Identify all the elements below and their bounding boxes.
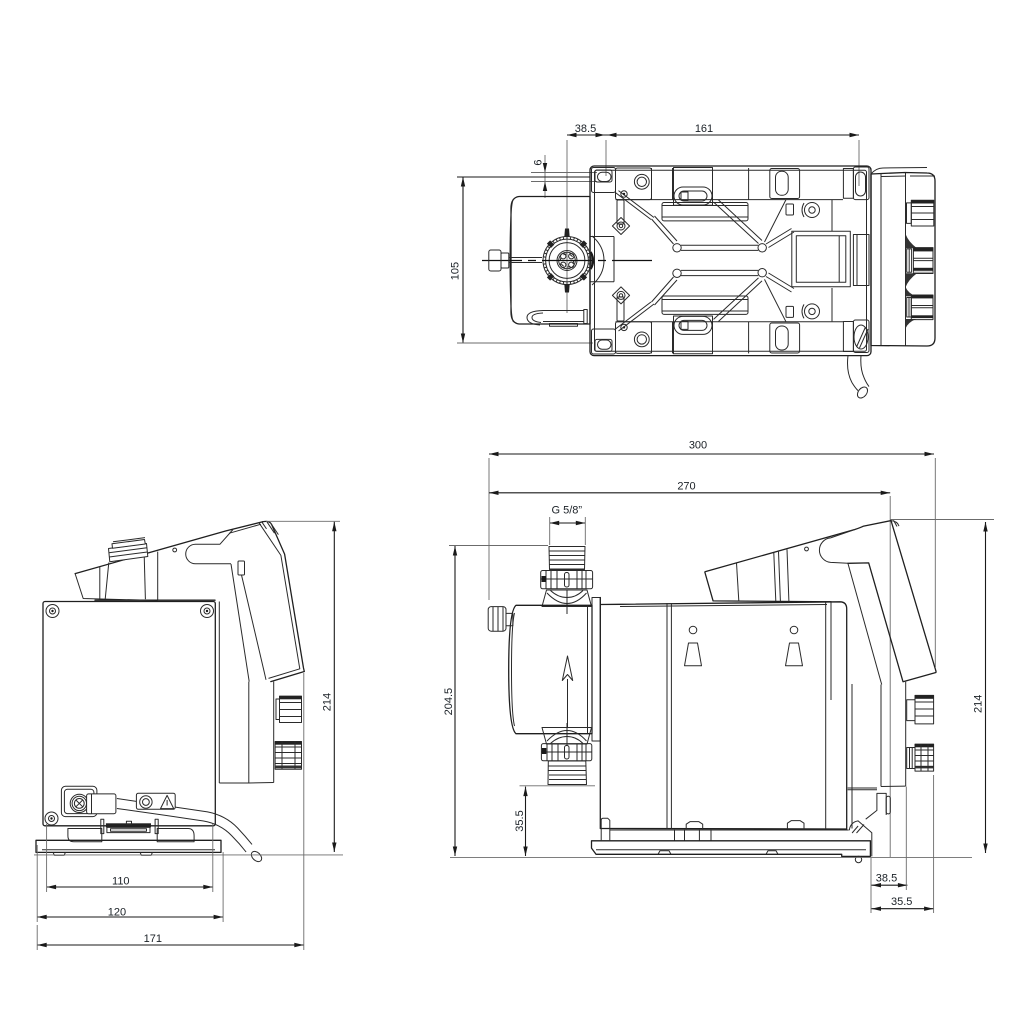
svg-text:6: 6 (533, 159, 545, 165)
svg-text:270: 270 (677, 480, 695, 492)
svg-text:161: 161 (695, 123, 713, 135)
svg-text:35.5: 35.5 (514, 810, 526, 831)
svg-text:120: 120 (108, 906, 126, 918)
svg-text:171: 171 (144, 933, 162, 945)
svg-text:G 5/8”: G 5/8” (552, 505, 583, 517)
svg-text:35.5: 35.5 (891, 896, 912, 908)
svg-text:105: 105 (450, 262, 462, 280)
svg-text:38.5: 38.5 (575, 123, 596, 135)
svg-text:110: 110 (112, 875, 130, 887)
svg-text:214: 214 (973, 695, 985, 713)
svg-text:38.5: 38.5 (876, 872, 897, 884)
svg-text:300: 300 (689, 440, 707, 452)
svg-text:204.5: 204.5 (443, 688, 455, 716)
svg-text:214: 214 (322, 693, 334, 711)
